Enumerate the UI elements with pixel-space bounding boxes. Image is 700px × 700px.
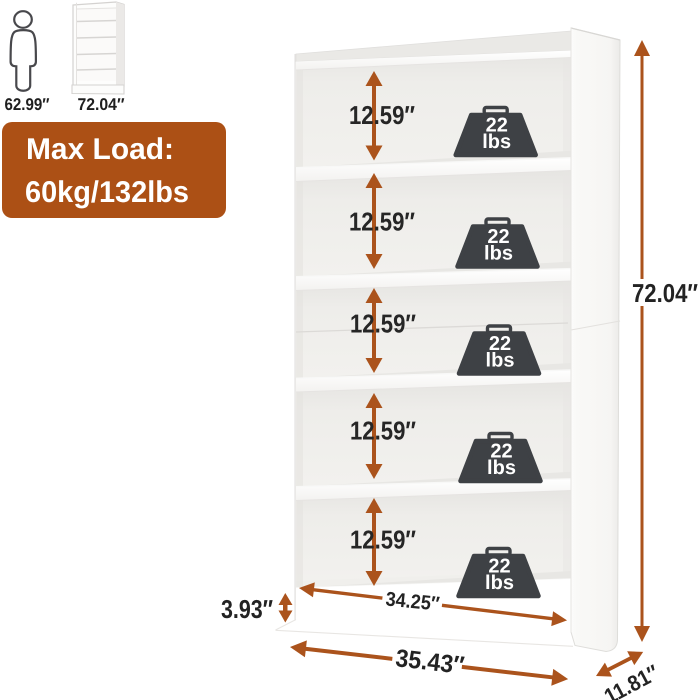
svg-text:Max Load:: Max Load: [26, 133, 174, 166]
svg-text:12.59″: 12.59″ [349, 100, 415, 130]
svg-text:12.59″: 12.59″ [350, 416, 416, 446]
svg-text:12.59″: 12.59″ [349, 207, 415, 237]
svg-text:72.04″: 72.04″ [78, 95, 125, 114]
svg-text:3.93″: 3.93″ [221, 594, 273, 624]
svg-text:12.59″: 12.59″ [350, 525, 416, 555]
svg-text:60kg/132lbs: 60kg/132lbs [25, 176, 189, 209]
svg-text:62.99″: 62.99″ [5, 95, 50, 114]
svg-text:12.59″: 12.59″ [350, 309, 416, 339]
svg-text:72.04″: 72.04″ [632, 278, 698, 308]
